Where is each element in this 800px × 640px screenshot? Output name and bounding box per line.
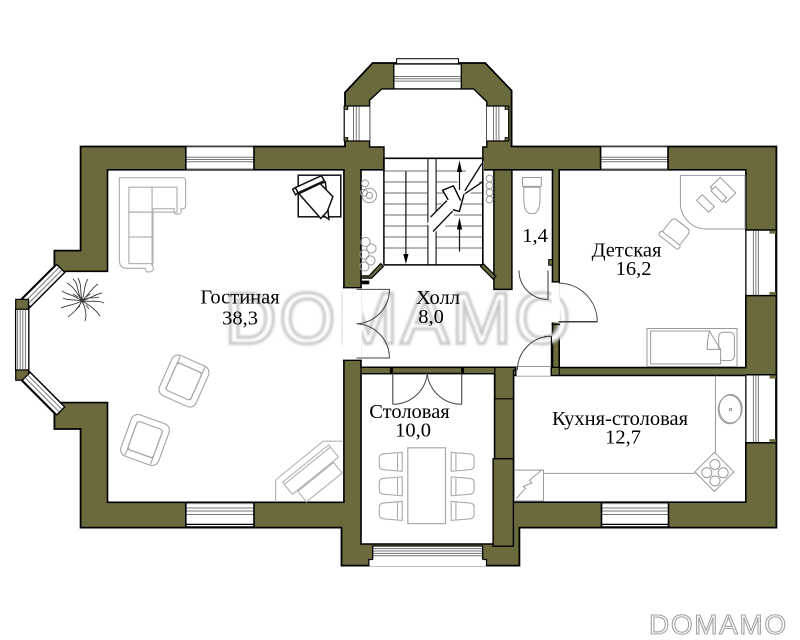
svg-text:Гостиная: Гостиная bbox=[200, 287, 280, 309]
svg-text:1,4: 1,4 bbox=[522, 225, 548, 247]
svg-text:DOMAMO: DOMAMO bbox=[649, 609, 788, 640]
svg-text:38,3: 38,3 bbox=[222, 308, 258, 330]
svg-text:8,0: 8,0 bbox=[418, 306, 444, 328]
svg-text:10,0: 10,0 bbox=[395, 420, 431, 442]
svg-text:16,2: 16,2 bbox=[616, 258, 652, 280]
svg-text:12,7: 12,7 bbox=[605, 427, 641, 449]
